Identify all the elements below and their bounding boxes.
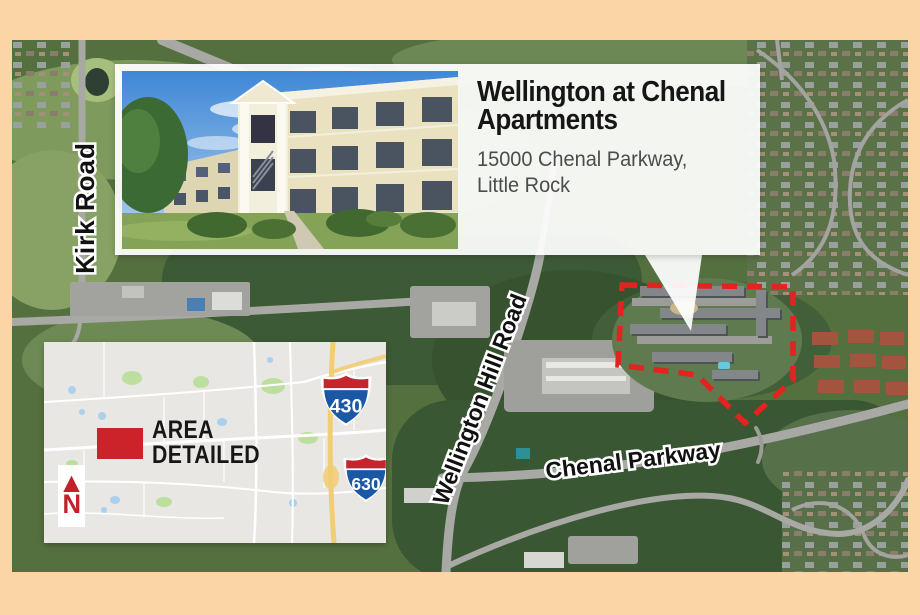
news-graphic: Kirk Road Wellington Hill Road Chenal Pa… [0, 0, 920, 615]
inset-locator-map: AREA DETAILED 430 630 ▲ N [44, 342, 386, 543]
area-detailed-line2: DETAILED [152, 443, 260, 468]
interstate-430-number: 430 [330, 396, 363, 418]
callout-address: 15000 Chenal Parkway, Little Rock [477, 147, 743, 200]
interstate-630-shield-icon: 630 [343, 454, 386, 502]
callout-address-line1: 15000 Chenal Parkway, [477, 147, 743, 173]
north-indicator: ▲ N [58, 465, 85, 527]
callout-box: Wellington at Chenal Apartments 15000 Ch… [115, 64, 760, 255]
area-detailed-rect [97, 428, 143, 459]
interstate-630-number: 630 [351, 474, 380, 494]
red-roof-apartments [812, 330, 908, 395]
area-detailed-label: AREA DETAILED [152, 418, 260, 467]
callout-title-line1: Wellington at Chenal [477, 78, 729, 106]
aerial-map: Kirk Road Wellington Hill Road Chenal Pa… [12, 40, 908, 572]
callout-text: Wellington at Chenal Apartments 15000 Ch… [477, 78, 757, 199]
apartment-photo [122, 71, 458, 249]
callout-title-line2: Apartments [477, 106, 729, 134]
road-label-kirk-road: Kirk Road [70, 142, 100, 274]
area-detailed-line1: AREA [152, 418, 260, 443]
swimming-pool [718, 362, 730, 369]
north-label: N [62, 492, 81, 516]
callout-address-line2: Little Rock [477, 173, 743, 199]
interstate-430-shield-icon: 430 [320, 372, 372, 426]
callout-title: Wellington at Chenal Apartments [477, 78, 729, 135]
